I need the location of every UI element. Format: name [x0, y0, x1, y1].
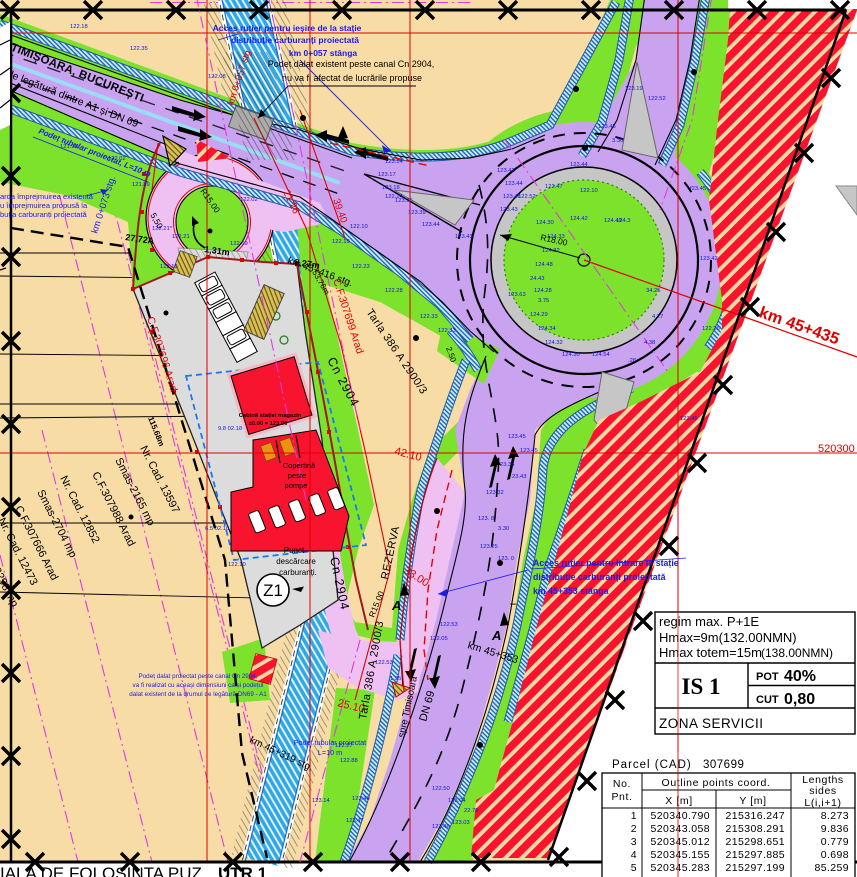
- svg-text:L(i,i+1): L(i,i+1): [804, 797, 841, 809]
- svg-text:124.42: 124.42: [570, 216, 588, 222]
- svg-text:215298.651: 215298.651: [726, 836, 785, 848]
- svg-text:124.33: 124.33: [547, 234, 565, 240]
- svg-text:carburanți.: carburanți.: [279, 568, 317, 577]
- svg-text:122.88: 122.88: [340, 758, 358, 764]
- svg-text:3: 3: [631, 836, 637, 848]
- svg-text:0.698: 0.698: [821, 849, 849, 861]
- svg-text:215316.247: 215316.247: [726, 810, 785, 822]
- svg-text:121.89: 121.89: [132, 182, 150, 188]
- svg-text:124.32: 124.32: [542, 248, 560, 254]
- svg-text:122.10: 122.10: [350, 224, 368, 230]
- svg-text:124.54: 124.54: [592, 352, 611, 358]
- svg-text:9.836: 9.836: [821, 823, 849, 835]
- svg-text:122.10: 122.10: [228, 562, 246, 568]
- svg-text:Acces rutier pentru ieșire de: Acces rutier pentru ieșire de la stație: [213, 23, 362, 33]
- svg-text:Pnt.: Pnt.: [611, 791, 632, 803]
- svg-text:No.: No.: [613, 778, 631, 790]
- svg-text:40%: 40%: [784, 668, 816, 685]
- svg-text:distribuție carburanți proiect: distribuție carburanți proiectată: [231, 35, 359, 45]
- svg-text:122.19: 122.19: [332, 239, 350, 245]
- svg-text:A: A: [491, 628, 501, 643]
- svg-text:122.02: 122.02: [240, 197, 258, 203]
- svg-text:122.52: 122.52: [648, 96, 666, 102]
- svg-text:nu va fi afectat de lucrările: nu va fi afectat de lucrările propuse: [282, 73, 422, 83]
- svg-text:1: 1: [631, 810, 637, 822]
- svg-text:122.27: 122.27: [335, 743, 353, 749]
- svg-text:122.15: 122.15: [160, 264, 178, 270]
- svg-text:IS 1: IS 1: [682, 674, 721, 699]
- svg-text:Podeț dalat proiectat peste ca: Podeț dalat proiectat peste canal Cn 290…: [138, 673, 257, 680]
- svg-text:Podeț dalat existent peste can: Podeț dalat existent peste canal Cn 2904…: [268, 59, 435, 69]
- svg-text:123.39: 123.39: [408, 210, 426, 216]
- svg-text:(138.00NMN): (138.00NMN): [761, 646, 833, 660]
- svg-text:34.25: 34.25: [646, 288, 661, 294]
- svg-text:123.25: 123.25: [480, 544, 498, 550]
- svg-text:6.5 02.10: 6.5 02.10: [205, 526, 229, 532]
- svg-text:124.29: 124.29: [530, 312, 548, 318]
- svg-text:3.75: 3.75: [538, 298, 549, 304]
- svg-text:124.3: 124.3: [616, 218, 631, 224]
- svg-text:122.53: 122.53: [375, 660, 393, 666]
- svg-text:122.05: 122.05: [430, 636, 448, 642]
- svg-text:Copertină: Copertină: [283, 461, 316, 470]
- svg-text:km 45+353 stânga: km 45+353 stânga: [533, 586, 609, 596]
- svg-text:Acces rutier pentru intrare la: Acces rutier pentru intrare la stație: [533, 558, 679, 568]
- svg-text:122.33: 122.33: [438, 328, 456, 334]
- svg-text:Y [m]: Y [m]: [739, 795, 766, 807]
- svg-text:123.18: 123.18: [382, 185, 400, 191]
- svg-text:122.69: 122.69: [230, 241, 248, 247]
- svg-text:520340.790: 520340.790: [651, 810, 710, 822]
- svg-text:123.43: 123.43: [455, 234, 473, 240]
- svg-text:123.44: 123.44: [505, 181, 524, 187]
- svg-text:4: 4: [631, 849, 637, 861]
- svg-text:1.35: 1.35: [390, 676, 401, 682]
- svg-text:123.42: 123.42: [700, 256, 718, 262]
- svg-text:22.79: 22.79: [464, 808, 479, 814]
- svg-text:123.48: 123.48: [352, 796, 370, 802]
- svg-text:123.45: 123.45: [680, 416, 698, 422]
- svg-text:23.35: 23.35: [500, 462, 515, 468]
- svg-text:3.30: 3.30: [498, 526, 509, 532]
- svg-text:123.14: 123.14: [385, 159, 404, 165]
- svg-text:123. 8: 123. 8: [478, 516, 494, 522]
- svg-text:5: 5: [631, 862, 637, 874]
- svg-text:0,80: 0,80: [784, 691, 815, 708]
- svg-text:123.48: 123.48: [503, 194, 521, 200]
- svg-text:±0.00 = 123.00: ±0.00 = 123.00: [249, 421, 288, 427]
- svg-text:122.24: 122.24: [385, 194, 404, 200]
- svg-text:122.21*: 122.21*: [152, 226, 173, 232]
- svg-text:POT: POT: [756, 671, 779, 683]
- svg-text:123. 0: 123. 0: [498, 556, 514, 562]
- svg-text:Cabină stației magazin: Cabină stației magazin: [239, 413, 302, 419]
- svg-text:Parcel (CAD): Parcel (CAD): [612, 759, 692, 771]
- svg-text:sides: sides: [809, 785, 837, 797]
- svg-text:8.273: 8.273: [821, 810, 849, 822]
- svg-text:4.38: 4.38: [644, 340, 655, 346]
- svg-text:122.21: 122.21: [172, 234, 190, 240]
- svg-text:Hmax=9m(132.00NMN): Hmax=9m(132.00NMN): [659, 630, 797, 645]
- svg-text:va fi realizat cu aceași dimen: va fi realizat cu aceași dimensiuni ca ș…: [133, 682, 264, 689]
- svg-text:124.30: 124.30: [562, 352, 580, 358]
- svg-text:23.43: 23.43: [512, 474, 527, 480]
- svg-text:123.44: 123.44: [570, 162, 589, 168]
- svg-text:122.08: 122.08: [208, 74, 226, 80]
- svg-text:CUT: CUT: [756, 694, 779, 706]
- svg-text:122.10: 122.10: [580, 188, 598, 194]
- svg-text:215297.199: 215297.199: [726, 862, 785, 874]
- svg-text:122.26: 122.26: [702, 326, 720, 332]
- svg-text:520345.155: 520345.155: [651, 849, 710, 861]
- svg-text:124.48: 124.48: [535, 262, 553, 268]
- svg-text:3.30: 3.30: [612, 138, 623, 144]
- svg-text:peste: peste: [288, 471, 306, 480]
- svg-text:UTR 1: UTR 1: [218, 864, 267, 877]
- svg-text:123.45: 123.45: [598, 124, 616, 130]
- svg-text:24.43: 24.43: [530, 276, 545, 282]
- svg-text:.28: .28: [628, 358, 636, 364]
- svg-text:122.50: 122.50: [432, 786, 450, 792]
- svg-text:520345.012: 520345.012: [651, 836, 710, 848]
- svg-text:f23.45: f23.45: [690, 186, 706, 192]
- svg-text:124.34: 124.34: [538, 326, 557, 332]
- svg-text:L=10 m: L=10 m: [318, 748, 342, 757]
- svg-text:215308.291: 215308.291: [726, 823, 785, 835]
- svg-text:124.32: 124.32: [545, 340, 563, 346]
- svg-text:pompe: pompe: [285, 481, 308, 490]
- svg-text:122.28: 122.28: [385, 288, 403, 294]
- svg-text:124.30: 124.30: [536, 220, 554, 226]
- svg-text:520300: 520300: [818, 443, 855, 455]
- svg-text:123.44: 123.44: [422, 222, 441, 228]
- svg-text:Punct: Punct: [284, 546, 305, 555]
- svg-text:122.33: 122.33: [420, 314, 438, 320]
- svg-text:Z1: Z1: [263, 581, 283, 600]
- svg-text:9.8 02.18: 9.8 02.18: [218, 426, 242, 432]
- svg-text:u împrejmuirea propusă la: u împrejmuirea propusă la: [0, 201, 88, 210]
- svg-text:4.27: 4.27: [652, 314, 663, 320]
- svg-text:2: 2: [631, 823, 637, 835]
- svg-text:215297.885: 215297.885: [726, 849, 785, 861]
- svg-text:520343.058: 520343.058: [651, 823, 710, 835]
- svg-text:122.35: 122.35: [130, 46, 148, 52]
- svg-text:123.47: 123.47: [346, 818, 364, 824]
- svg-text:arda împrejmuirea existentă: arda împrejmuirea existentă: [0, 192, 94, 201]
- svg-text:123.14: 123.14: [312, 798, 331, 804]
- svg-text:123.45: 123.45: [520, 448, 538, 454]
- svg-text:85.259: 85.259: [814, 862, 849, 874]
- svg-text:123.46: 123.46: [432, 824, 450, 830]
- svg-text:520345.283: 520345.283: [651, 862, 710, 874]
- svg-text:122.53: 122.53: [440, 622, 458, 628]
- svg-text:Podeț tubular proiectat: Podeț tubular proiectat: [294, 738, 366, 747]
- svg-text:123.42: 123.42: [497, 168, 515, 174]
- svg-text:regim max. P+1E: regim max. P+1E: [659, 614, 759, 629]
- svg-text:A: A: [391, 598, 401, 613]
- svg-text:Hmax totem=15m: Hmax totem=15m: [659, 645, 762, 660]
- svg-text:123.04: 123.04: [448, 798, 467, 804]
- svg-text:122.23: 122.23: [352, 264, 370, 270]
- svg-text:IALA DE FOLOSINTA PUZ: IALA DE FOLOSINTA PUZ: [0, 864, 202, 877]
- svg-text:122.47: 122.47: [545, 184, 563, 190]
- svg-text:ZONA SERVICII: ZONA SERVICII: [659, 716, 764, 731]
- svg-text:buția carburanți proiectată: buția carburanți proiectată: [0, 210, 88, 219]
- svg-text:123.17: 123.17: [378, 172, 396, 178]
- svg-text:km 0+057 stânga: km 0+057 stânga: [289, 48, 358, 58]
- svg-text:123.43: 123.43: [500, 207, 518, 213]
- svg-text:122.02: 122.02: [108, 156, 126, 162]
- svg-text:123.63: 123.63: [508, 292, 526, 298]
- svg-text:0.779: 0.779: [821, 836, 849, 848]
- svg-text:121.95: 121.95: [60, 144, 78, 150]
- svg-text:123.03: 123.03: [452, 820, 470, 826]
- svg-text:descărcare: descărcare: [276, 557, 316, 566]
- svg-text:X [m]: X [m]: [665, 795, 693, 807]
- svg-text:123.32: 123.32: [486, 490, 504, 496]
- svg-text:123.19: 123.19: [625, 86, 643, 92]
- svg-text:124.28: 124.28: [534, 288, 552, 294]
- svg-text:122.18: 122.18: [70, 24, 88, 30]
- svg-text:distribuție carburanți proiect: distribuție carburanți proiectată: [533, 572, 666, 582]
- svg-text:dalat existent de la drumul de: dalat existent de la drumul de legătură …: [129, 691, 267, 698]
- svg-text:307699: 307699: [703, 759, 744, 771]
- svg-text:123.45: 123.45: [508, 434, 526, 440]
